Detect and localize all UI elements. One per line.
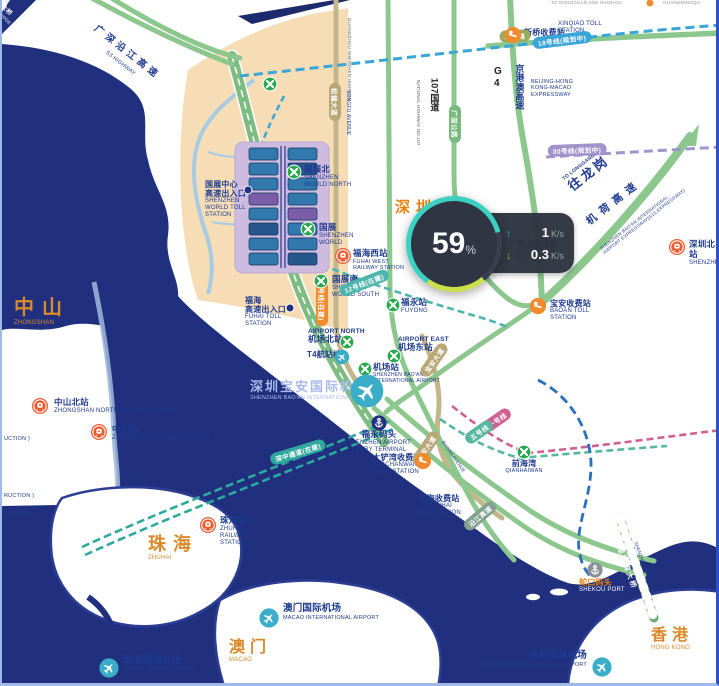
label-fuhai-toll: 福海 高速出入口FUHAI TOLL STATION <box>245 296 286 328</box>
capsule-szzs-corridor: 深中通道(在建) <box>269 438 327 466</box>
rail-icon-fuhai-west <box>335 248 352 265</box>
label-edge-cut-1: UCTION ) <box>4 436 30 442</box>
upload-unit: K/s <box>551 229 564 239</box>
label-g4: G 4 <box>494 66 502 89</box>
transit-map: 深圳中山ZHONGSHAN珠海ZHUHAI澳门MACAO香港HONG KONG中… <box>0 0 719 686</box>
label-fuyong-station: 福永站FUYONG <box>401 298 428 315</box>
rail-icon-zhongshan-north <box>32 398 49 415</box>
dot-icon-top <box>646 0 655 8</box>
download-value: 0.3 <box>531 247 549 262</box>
metro-icon-shenzhen-world-north <box>286 164 302 180</box>
label-zhongshan-north-station: 中山北站ZHONGSHAN NORTH RAILWAY STATION <box>54 398 176 415</box>
rail-icon-shenzhen-north <box>669 239 686 256</box>
label-gs-highway-en: GUANGZHOU-SHENZHEN HIGHWAY <box>347 18 352 101</box>
label-airport-north: AIRPORT NORTH机场北站 <box>308 328 365 345</box>
label-bridge-topleft: 大桥BRIDGE <box>0 4 17 26</box>
label-s3-expwy: 广深沿江高速 <box>91 24 162 82</box>
label-g107-en: NATIONAL HIGHWAY NO.107 <box>416 80 421 146</box>
toll-icon-xinqiao <box>505 27 522 44</box>
airport-icon-baoan <box>350 374 384 408</box>
airport-icon-hongkong <box>592 657 612 677</box>
toll-icon-baoan <box>530 298 547 315</box>
label-edge-cut-2: RUCTION ) <box>4 493 34 499</box>
upload-row: ↑ 1 K/s <box>506 225 564 240</box>
capsule-line-12: 12号线(在建) <box>338 268 390 298</box>
metro-icon-qianhaiwan <box>516 444 532 460</box>
label-shenzhen-north-station: 深圳北站SHENZHEN <box>689 240 719 266</box>
progress-percent-suffix: % <box>465 243 476 257</box>
label-baoan-toll: 宝安收费站BAOAN TOLL STATION <box>550 299 591 322</box>
label-qianhai-toll: 前海收费站QIANHAI TOLL STATION <box>417 494 461 517</box>
capsule-gs-highway: 广深公路 <box>449 105 461 143</box>
airport-icon-jinwan <box>99 658 119 678</box>
capsule-yanjiang-expwy: 沿江高速 <box>462 499 499 533</box>
progress-ring[interactable]: 59 % <box>406 196 502 292</box>
label-zhongshan-region: 中山ZHONGSHAN <box>14 297 70 327</box>
label-shekou-port: 蛇口码头SHEKOU PORT <box>579 578 625 594</box>
label-macao-region: 澳门MACAO <box>229 639 271 664</box>
metro-icon-airport-east <box>386 348 402 364</box>
map-markers: 深圳中山ZHONGSHAN珠海ZHUHAI澳门MACAO香港HONG KONG中… <box>2 0 716 683</box>
download-row: ↓ 0.3 K/s <box>506 247 564 262</box>
toll-icon-dachanwan <box>415 453 432 470</box>
label-shenzhen-world-toll: 国展中心 高速出入口SHENZHEN WORLD TOLL STATION <box>205 180 246 219</box>
upload-arrow-icon: ↑ <box>506 228 512 240</box>
label-jinggangao: 京港澳高速 <box>514 64 524 110</box>
metro-icon-line18 <box>262 76 278 92</box>
capsule-baoan-avenue-2: 宝安大道 <box>418 341 450 379</box>
download-unit: K/s <box>551 251 564 261</box>
label-to-dongguan: TO DONGGUAN AND HUIZHOU <box>551 0 622 5</box>
metro-icon-airport-north <box>339 334 355 350</box>
label-szbay-bridge-en: SHENZHEN BAY BRIDGE <box>633 541 657 596</box>
airport-icon-macao <box>259 608 279 628</box>
label-zhuhai-jinwan-airport: 珠海金湾机场ZHUHAI JINWAN AIRPORT <box>123 656 196 673</box>
label-szbay-bridge: 深圳湾大桥 <box>614 546 637 591</box>
rail-icon-zhongshan <box>91 424 108 441</box>
download-arrow-icon: ↓ <box>506 250 512 262</box>
label-qianhaiwan-station: 前海湾QIANHAIWAN <box>505 459 542 475</box>
label-jinggangao-en: BEIJING-HONG KONG-MACAO EXPRESSWAY <box>531 79 573 98</box>
label-hongkong-region: 香港HONG KONG <box>651 627 693 652</box>
label-zhuhai-region: 珠海ZHUHAI <box>148 534 198 562</box>
rail-icon-zhuhai <box>200 517 217 534</box>
dot-icon-shenzhen-world-toll <box>244 186 253 195</box>
metro-icon-shenzhen-world <box>300 221 316 237</box>
metro-icon-fuyong <box>385 297 401 313</box>
label-baoan-avenue-en: BAOAN AVENUE <box>441 440 467 474</box>
label-zhuhai-station: 珠海站ZHUHAI RAILWAY STATION <box>220 516 247 546</box>
label-zhongshan-station: 中山站ZHONGSHAN RAILWAY STATION <box>112 425 210 442</box>
label-jihe-expwy: 机荷高速 <box>584 177 643 227</box>
upload-value: 1 <box>542 225 549 240</box>
anchor-icon-fuyong-ferry <box>371 415 387 431</box>
label-s3-expwy-en: S3 HIGHWAY <box>104 50 136 77</box>
label-g107: 107国道 <box>429 78 439 112</box>
label-shenzhen-world: 国展SHENZHEN WORLD <box>319 223 354 247</box>
dot-icon-fuhai-toll <box>286 304 295 313</box>
label-fuhai-west-station: 福海西站FUHAI WEST RAILWAY STATION <box>353 249 404 271</box>
label-guangming: GUANGMINGQU <box>663 0 700 5</box>
label-macao-intl-airport: 澳门国际机场MACAO INTERNATIONAL AIRPORT <box>283 604 379 621</box>
progress-percent: 59 <box>432 227 465 261</box>
capsule-songfu-avenue: 松福大道 <box>329 83 341 121</box>
airport-icon-t4 <box>335 350 350 365</box>
capsule-line-18: 18号线(规划中) <box>532 30 592 49</box>
anchor-icon-shekou <box>587 562 603 578</box>
progress-ring-inner: 59 % <box>411 201 497 287</box>
metro-icon-shenzhen-world-south <box>313 273 329 289</box>
label-hongkong-intl-airport: 香港国际机场HONG KONG INTERNATIONAL AIRPORT <box>476 651 587 668</box>
capsule-line-5: 五号线 <box>463 418 495 446</box>
label-fuyong-ferry: 福永码头SHENZHEN AIRPORT FERRY TERMINAL <box>347 430 411 454</box>
overlay-widget[interactable]: ↑ 1 K/s ↓ 0.3 K/s 59 % <box>406 196 581 298</box>
capsule-line-30: 30号线(规划中) <box>548 143 607 157</box>
label-songfu-en: SONGFU AVENUE <box>344 90 350 135</box>
label-shenzhen-world-north: 国展北SHENZHEN WORLD NORTH <box>304 165 351 189</box>
label-edge-cut-3: IUCTION ) <box>4 511 32 517</box>
